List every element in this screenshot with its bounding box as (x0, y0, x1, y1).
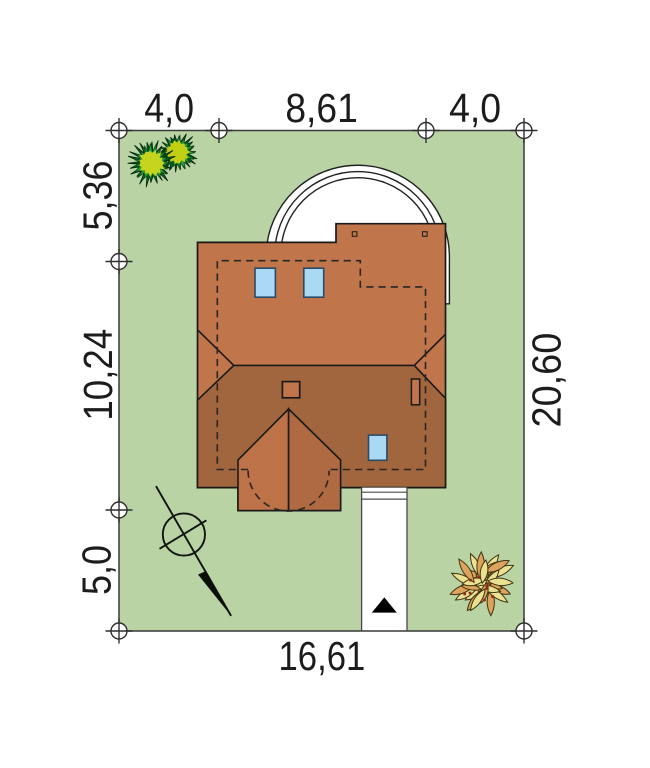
svg-text:5,0: 5,0 (74, 545, 120, 595)
svg-text:20,60: 20,60 (523, 333, 569, 428)
svg-text:5,36: 5,36 (75, 161, 121, 231)
svg-text:16,61: 16,61 (279, 633, 366, 679)
svg-text:4,0: 4,0 (144, 85, 194, 131)
svg-text:10,24: 10,24 (75, 329, 121, 421)
svg-text:4,0: 4,0 (449, 85, 501, 131)
svg-text:8,61: 8,61 (285, 85, 358, 131)
